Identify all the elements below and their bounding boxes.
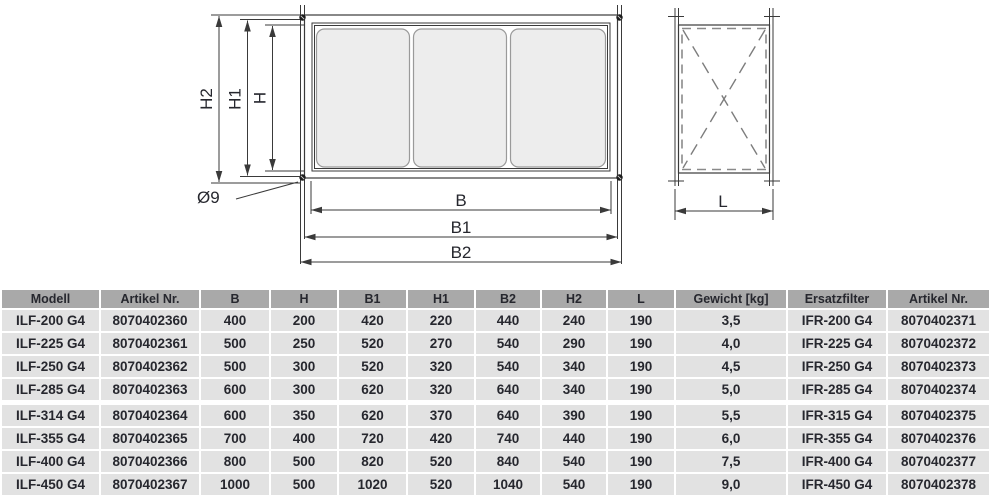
table-cell: 440 [541,427,607,450]
table-cell: 400 [270,427,338,450]
table-cell: IFR-450 G4 [787,473,887,496]
table-cell: 1040 [475,473,541,496]
table-cell: 520 [338,332,407,355]
table-cell: 190 [607,378,675,403]
dim-label-l: L [718,192,727,211]
table-cell: 420 [407,427,475,450]
dim-label-hole: Ø9 [197,188,220,207]
table-row: ILF-285 G4807040236360030062032064034019… [2,378,990,403]
table-cell: 840 [475,450,541,473]
table-row: ILF-355 G4807040236570040072042074044019… [2,427,990,450]
table-cell: 1000 [200,473,270,496]
table-cell: 8070402378 [887,473,990,496]
table-cell: 800 [200,450,270,473]
table-cell: 300 [270,355,338,378]
table-row: ILF-200 G4807040236040020042022044024019… [2,309,990,332]
table-cell: 240 [541,309,607,332]
table-cell: 8070402374 [887,378,990,403]
dim-label-b: B [455,191,466,210]
table-cell: IFR-250 G4 [787,355,887,378]
column-header: Artikel Nr. [100,290,200,309]
filter-panels [317,29,606,167]
column-header: H2 [541,290,607,309]
table-cell: 820 [338,450,407,473]
table-cell: 620 [338,378,407,403]
table-cell: 500 [270,473,338,496]
table-cell: 5,5 [675,403,787,428]
dim-label-h: H [251,92,270,104]
table-cell: IFR-315 G4 [787,403,887,428]
header-row: ModellArtikel Nr.BHB1H1B2H2LGewicht [kg]… [2,290,990,309]
table-cell: 350 [270,403,338,428]
table-cell: 520 [407,473,475,496]
table-cell: 340 [541,355,607,378]
table-cell: 8070402377 [887,450,990,473]
table-cell: IFR-400 G4 [787,450,887,473]
table-cell: 1020 [338,473,407,496]
table-cell: 640 [475,378,541,403]
table-row: ILF-314 G4807040236460035062037064039019… [2,403,990,428]
column-header: H1 [407,290,475,309]
table-cell: 190 [607,355,675,378]
table-cell: 540 [475,355,541,378]
table-cell: 8070402364 [100,403,200,428]
table-cell: 500 [200,355,270,378]
table-cell: 190 [607,450,675,473]
table-cell: 220 [407,309,475,332]
table-cell: 190 [607,332,675,355]
spec-table-body: ILF-200 G4807040236040020042022044024019… [2,309,990,496]
hole-callout: Ø9 [197,182,298,207]
column-header: Ersatzfilter [787,290,887,309]
column-header: B [200,290,270,309]
table-cell: 540 [541,450,607,473]
table-cell: ILF-314 G4 [2,403,100,428]
table-cell: 720 [338,427,407,450]
table-cell: 7,5 [675,450,787,473]
table-cell: 600 [200,403,270,428]
table-cell: 300 [270,378,338,403]
table-cell: 8070402362 [100,355,200,378]
table-cell: 8070402373 [887,355,990,378]
table-cell: 320 [407,355,475,378]
table-cell: 190 [607,403,675,428]
table-cell: 4,5 [675,355,787,378]
table-cell: 190 [607,473,675,496]
table-cell: 740 [475,427,541,450]
column-header: B1 [338,290,407,309]
dim-label-h2: H2 [197,88,216,110]
table-cell: 620 [338,403,407,428]
table-cell: 500 [200,332,270,355]
table-cell: 200 [270,309,338,332]
table-cell: IFR-355 G4 [787,427,887,450]
table-cell: 4,0 [675,332,787,355]
table-cell: 8070402376 [887,427,990,450]
technical-drawing: H2 H1 H Ø9 B B1 B2 [0,0,1000,289]
table-cell: 420 [338,309,407,332]
table-row: ILF-450 G4807040236710005001020520104054… [2,473,990,496]
table-cell: 8070402365 [100,427,200,450]
table-cell: 540 [475,332,541,355]
table-cell: 390 [541,403,607,428]
table-cell: 9,0 [675,473,787,496]
spec-table: ModellArtikel Nr.BHB1H1B2H2LGewicht [kg]… [2,290,991,497]
column-header: B2 [475,290,541,309]
table-cell: 3,5 [675,309,787,332]
table-cell: ILF-225 G4 [2,332,100,355]
table-cell: 500 [270,450,338,473]
column-header: L [607,290,675,309]
table-cell: IFR-285 G4 [787,378,887,403]
table-row: ILF-400 G4807040236680050082052084054019… [2,450,990,473]
table-cell: 400 [200,309,270,332]
table-cell: 600 [200,378,270,403]
table-cell: 5,0 [675,378,787,403]
side-view [668,8,780,186]
table-cell: 640 [475,403,541,428]
table-cell: 440 [475,309,541,332]
dim-label-h1: H1 [226,88,245,110]
table-cell: ILF-250 G4 [2,355,100,378]
table-cell: ILF-285 G4 [2,378,100,403]
column-header: H [270,290,338,309]
table-cell: ILF-450 G4 [2,473,100,496]
column-header: Modell [2,290,100,309]
table-cell: 8070402367 [100,473,200,496]
column-header: Artikel Nr. [887,290,990,309]
table-cell: 520 [338,355,407,378]
dim-label-b2: B2 [451,243,472,262]
table-cell: 340 [541,378,607,403]
table-cell: 8070402361 [100,332,200,355]
table-cell: 6,0 [675,427,787,450]
table-cell: 540 [541,473,607,496]
table-cell: 320 [407,378,475,403]
table-cell: ILF-200 G4 [2,309,100,332]
dim-label-b1: B1 [451,218,472,237]
table-cell: ILF-355 G4 [2,427,100,450]
table-cell: ILF-400 G4 [2,450,100,473]
table-cell: 700 [200,427,270,450]
table-cell: 8070402363 [100,378,200,403]
table-cell: 290 [541,332,607,355]
table-row: ILF-250 G4807040236250030052032054034019… [2,355,990,378]
table-cell: 190 [607,427,675,450]
table-cell: IFR-225 G4 [787,332,887,355]
table-cell: 8070402360 [100,309,200,332]
spec-table-header: ModellArtikel Nr.BHB1H1B2H2LGewicht [kg]… [2,290,990,309]
table-row: ILF-225 G4807040236150025052027054029019… [2,332,990,355]
table-cell: 190 [607,309,675,332]
table-cell: 250 [270,332,338,355]
table-cell: 270 [407,332,475,355]
table-cell: 520 [407,450,475,473]
cross-brace-dashed [683,30,765,168]
table-cell: IFR-200 G4 [787,309,887,332]
table-cell: 370 [407,403,475,428]
column-header: Gewicht [kg] [675,290,787,309]
table-cell: 8070402372 [887,332,990,355]
table-cell: 8070402366 [100,450,200,473]
table-cell: 8070402375 [887,403,990,428]
table-cell: 8070402371 [887,309,990,332]
